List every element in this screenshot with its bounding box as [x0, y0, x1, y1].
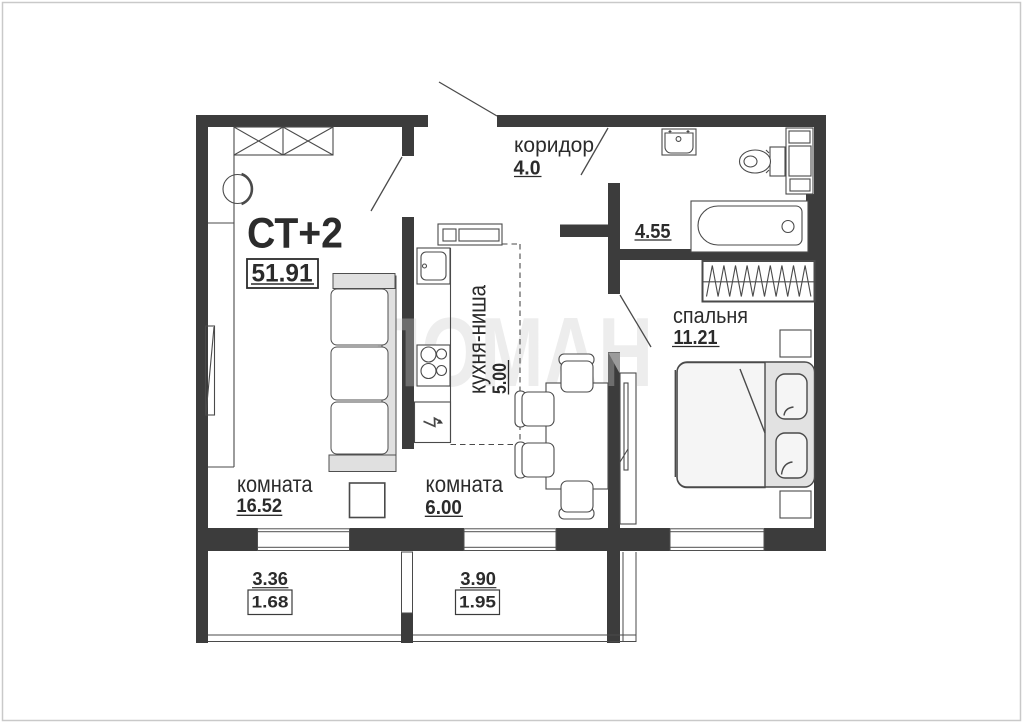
svg-text:1.68: 1.68	[252, 593, 289, 612]
svg-text:1.95: 1.95	[459, 593, 496, 612]
svg-text:кухня-ниша: кухня-ниша	[465, 284, 492, 394]
svg-text:комната: комната	[237, 471, 313, 497]
svg-text:коридор: коридор	[514, 134, 594, 157]
svg-text:3.36: 3.36	[252, 569, 288, 589]
svg-text:16.52: 16.52	[237, 496, 283, 517]
svg-text:3.90: 3.90	[460, 569, 496, 589]
svg-text:комната: комната	[426, 471, 504, 497]
svg-text:спальня: спальня	[673, 303, 748, 328]
svg-text:11.21: 11.21	[674, 327, 718, 349]
svg-text:СТ+2: СТ+2	[247, 210, 343, 258]
